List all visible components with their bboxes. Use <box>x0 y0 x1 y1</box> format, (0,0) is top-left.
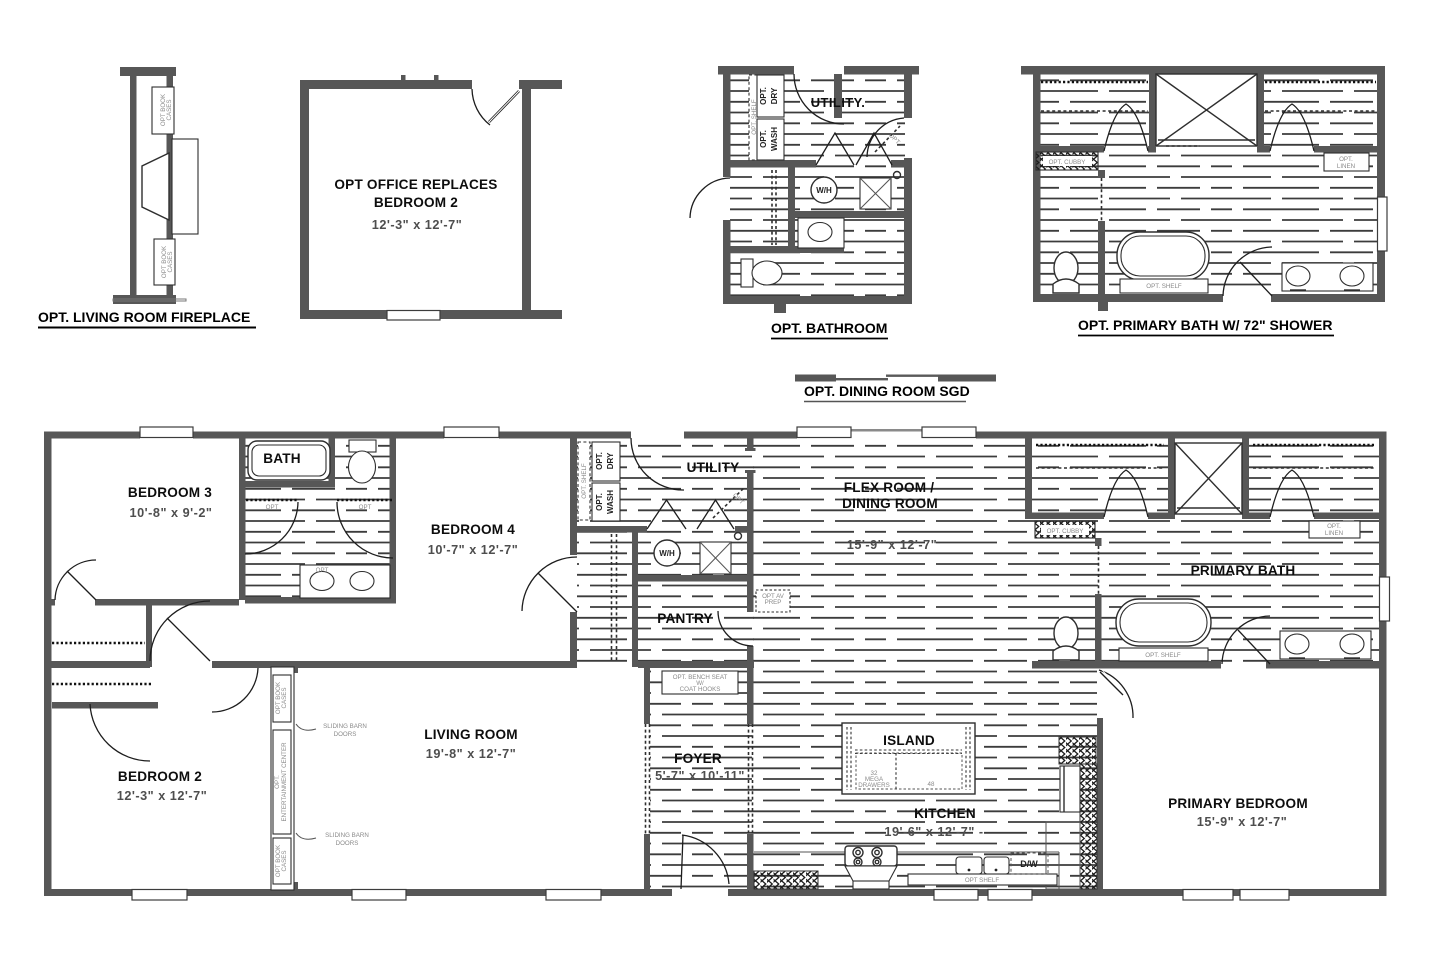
svg-text:DRY: DRY <box>606 452 615 469</box>
svg-text:D/W: D/W <box>1020 859 1038 869</box>
svg-text:CASES: CASES <box>281 688 288 709</box>
svg-text:OPT OFFICE REPLACES: OPT OFFICE REPLACES <box>334 177 497 192</box>
svg-text:19'-8" x 12'-7": 19'-8" x 12'-7" <box>426 747 516 761</box>
svg-text:ENTERTAINMENT CENTER: ENTERTAINMENT CENTER <box>281 742 288 822</box>
svg-text:10'-7" x 12'-7": 10'-7" x 12'-7" <box>428 543 518 557</box>
svg-text:CASES: CASES <box>167 252 174 273</box>
svg-text:W/H: W/H <box>659 549 675 558</box>
svg-text:FLEX ROOM /: FLEX ROOM / <box>844 480 935 495</box>
svg-text:UTILITY.: UTILITY. <box>811 95 865 110</box>
svg-text:DRY: DRY <box>770 87 779 104</box>
svg-text:OPT. DINING ROOM SGD: OPT. DINING ROOM SGD <box>804 383 970 399</box>
svg-text:48: 48 <box>928 781 935 788</box>
svg-text:PANTRY: PANTRY <box>657 611 713 626</box>
svg-text:ISLAND: ISLAND <box>883 733 935 748</box>
svg-text:OPT.: OPT. <box>1339 156 1353 163</box>
svg-text:WASH: WASH <box>606 490 615 514</box>
svg-text:5'-7" x 10'-11": 5'-7" x 10'-11" <box>655 769 745 783</box>
svg-text:OPT. SHELF: OPT. SHELF <box>581 463 588 499</box>
svg-text:BEDROOM 2: BEDROOM 2 <box>374 195 458 210</box>
svg-text:PRIMARY BEDROOM: PRIMARY BEDROOM <box>1168 796 1308 811</box>
svg-text:DOORS: DOORS <box>334 731 357 738</box>
svg-text:LINEN: LINEN <box>1325 530 1343 537</box>
svg-text:DOORS: DOORS <box>336 840 359 847</box>
svg-text:BEDROOM 4: BEDROOM 4 <box>431 522 515 537</box>
svg-text:OPT. PRIMARY BATH W/ 72" SHOWE: OPT. PRIMARY BATH W/ 72" SHOWER <box>1078 317 1333 333</box>
svg-text:OPT SHELF: OPT SHELF <box>965 877 999 884</box>
svg-text:KITCHEN: KITCHEN <box>914 806 976 821</box>
svg-text:15'-9" x 12'-7": 15'-9" x 12'-7" <box>1197 815 1287 829</box>
svg-text:15'-9" x 12'-7": 15'-9" x 12'-7" <box>847 538 937 552</box>
svg-text:OPT. BATHROOM: OPT. BATHROOM <box>771 320 887 336</box>
svg-text:DRAWERS: DRAWERS <box>858 782 889 789</box>
svg-text:OPT.: OPT. <box>274 775 281 789</box>
svg-text:OPT. CUBBY: OPT. CUBBY <box>1049 159 1086 166</box>
svg-text:PRIMARY BATH: PRIMARY BATH <box>1191 563 1296 578</box>
svg-text:OPT: OPT <box>316 567 329 574</box>
svg-text:LINEN: LINEN <box>1337 163 1355 170</box>
svg-text:CASES: CASES <box>281 851 288 872</box>
svg-text:19'-6" x 12'-7" -: 19'-6" x 12'-7" - <box>884 825 983 839</box>
svg-text:FOYER: FOYER <box>674 751 722 766</box>
svg-text:OPT.: OPT. <box>595 493 604 511</box>
svg-text:OPT.: OPT. <box>595 452 604 470</box>
svg-text:12'-3" x 12'-7": 12'-3" x 12'-7" <box>372 218 462 232</box>
svg-text:OPT.: OPT. <box>759 87 768 105</box>
svg-text:SLIDING BARN: SLIDING BARN <box>325 832 369 839</box>
svg-text:DINING ROOM: DINING ROOM <box>842 496 938 511</box>
svg-text:OPT.: OPT. <box>759 130 768 148</box>
svg-text:OPT.: OPT. <box>1327 523 1341 530</box>
svg-text:CASES: CASES <box>166 100 173 121</box>
svg-text:W/H: W/H <box>816 186 832 195</box>
svg-text:BEDROOM 2: BEDROOM 2 <box>118 769 202 784</box>
svg-text:OPT. SHELF: OPT. SHELF <box>1146 283 1182 290</box>
svg-text:OPT. SHELF: OPT. SHELF <box>1145 652 1181 659</box>
svg-text:COAT HOOKS: COAT HOOKS <box>680 686 721 693</box>
svg-text:BATH: BATH <box>263 451 301 466</box>
svg-text:OPT: OPT <box>266 504 279 511</box>
svg-text:OPT. CUBBY: OPT. CUBBY <box>1047 528 1084 535</box>
svg-text:OPT: OPT <box>359 504 372 511</box>
svg-text:UTILITY: UTILITY <box>687 460 740 475</box>
svg-text:OPT. LIVING ROOM FIREPLACE: OPT. LIVING ROOM FIREPLACE <box>38 309 250 325</box>
svg-text:SLIDING BARN: SLIDING BARN <box>323 723 367 730</box>
svg-text:10'-8" x 9'-2": 10'-8" x 9'-2" <box>130 506 213 520</box>
svg-text:WASH: WASH <box>770 127 779 151</box>
svg-text:PREP: PREP <box>765 599 782 606</box>
svg-text:LIVING ROOM: LIVING ROOM <box>424 727 518 742</box>
svg-text:12'-3" x 12'-7": 12'-3" x 12'-7" <box>117 789 207 803</box>
svg-text:BEDROOM 3: BEDROOM 3 <box>128 485 212 500</box>
